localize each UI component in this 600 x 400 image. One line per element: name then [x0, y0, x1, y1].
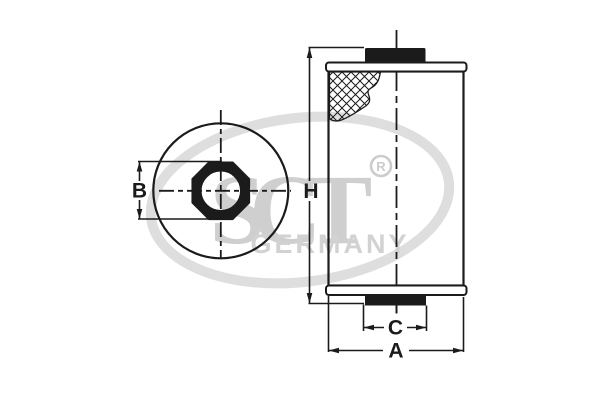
arrow-down-icon: [137, 209, 143, 219]
top-end-cap: [326, 63, 467, 72]
filter-media-hatch: [330, 72, 381, 121]
bottom-gasket: [365, 295, 426, 306]
dim-label-c: C: [388, 317, 403, 340]
arrow-up-icon: [307, 48, 313, 59]
dim-label-a: A: [388, 340, 403, 363]
dim-label-b: B: [132, 180, 147, 203]
arrow-left-icon: [329, 348, 340, 353]
dim-label-h: H: [303, 180, 318, 203]
bottom-end-cap: [326, 286, 467, 296]
filter-side-view: H C A: [303, 30, 466, 363]
top-gasket: [365, 48, 426, 63]
svg-text:R: R: [376, 159, 386, 174]
diagram-canvas: SCT R GERMANY B: [0, 0, 600, 400]
arrow-down-icon: [307, 293, 313, 304]
arrow-right-icon: [416, 325, 427, 330]
registered-trademark-icon: R: [371, 156, 391, 176]
arrow-right-icon: [453, 348, 464, 353]
oil-filter-technical-drawing: SCT R GERMANY B: [0, 0, 600, 400]
arrow-up-icon: [137, 162, 143, 172]
arrow-left-icon: [364, 325, 375, 330]
